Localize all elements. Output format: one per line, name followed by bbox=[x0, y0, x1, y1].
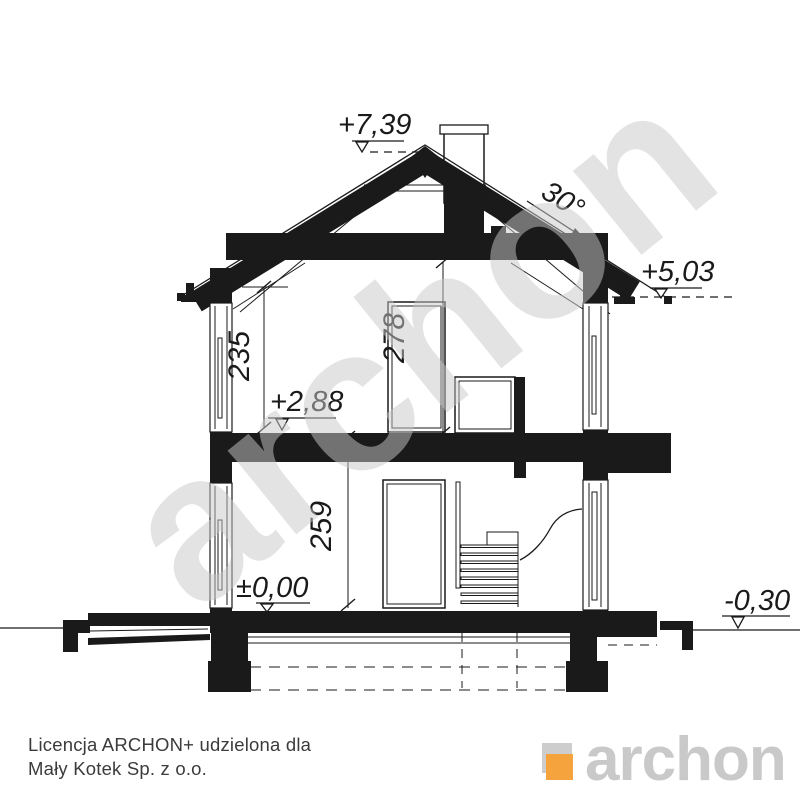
logo-orange-square bbox=[546, 754, 573, 780]
foundation bbox=[208, 611, 657, 692]
logo-text: archon bbox=[585, 725, 786, 794]
left-terrace bbox=[63, 613, 210, 652]
cross-section-drawing: +7,39 +5,03 +2,88 ±0,00 -0,30 30° 235 bbox=[0, 0, 800, 800]
license-line-2: Mały Kotek Sp. z o.o. bbox=[28, 757, 311, 781]
ground-floor-interior bbox=[383, 480, 582, 608]
ridge-level-label: +7,39 bbox=[338, 109, 411, 141]
staircase bbox=[456, 482, 582, 607]
license-line-1: Licencja ARCHON+ udzielona dla bbox=[28, 733, 311, 757]
handrail-curve bbox=[520, 509, 582, 560]
level-marker-terrain: -0,30 bbox=[722, 585, 790, 628]
license-text: Licencja ARCHON+ udzielona dla Mały Kote… bbox=[28, 733, 311, 781]
architectural-drawing-page: +7,39 +5,03 +2,88 ±0,00 -0,30 30° 235 bbox=[0, 0, 800, 800]
terrain-level-label: -0,30 bbox=[724, 585, 790, 617]
level-marker-ridge: +7,39 bbox=[338, 109, 424, 152]
right-porch bbox=[597, 611, 693, 650]
archon-logo: archon bbox=[538, 700, 800, 795]
entrance-door bbox=[583, 480, 608, 610]
